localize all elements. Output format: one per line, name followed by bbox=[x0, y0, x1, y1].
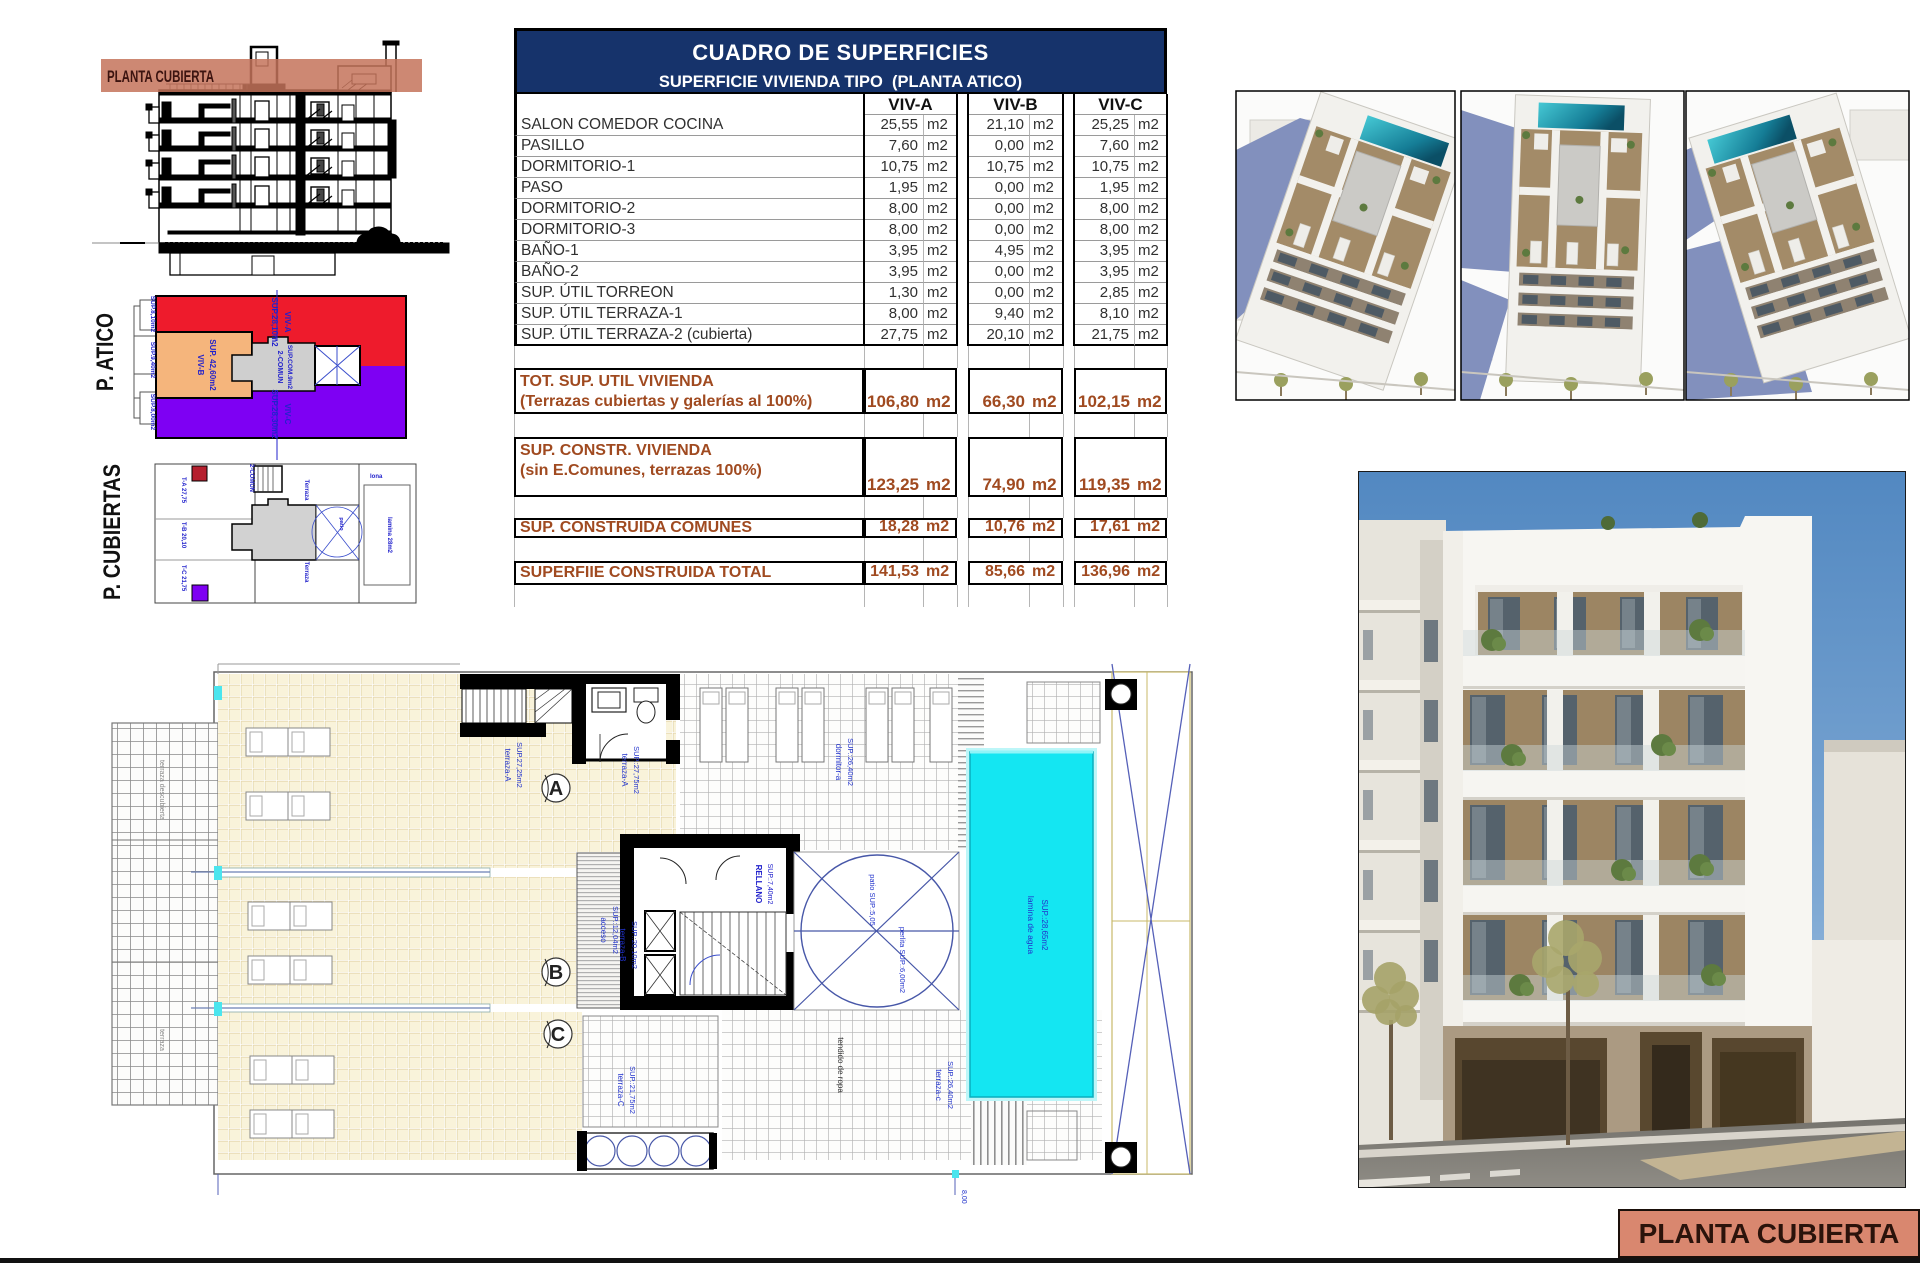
svg-text:terraza-A: terraza-A bbox=[620, 754, 629, 788]
svg-text:B: B bbox=[549, 962, 563, 984]
svg-text:lona: lona bbox=[370, 474, 383, 480]
svg-text:RELLANO: RELLANO bbox=[754, 865, 763, 904]
svg-text:Terraza: Terraza bbox=[303, 480, 309, 502]
svg-text:terraza: terraza bbox=[158, 1029, 165, 1051]
svg-text:Terraza: Terraza bbox=[303, 562, 309, 584]
svg-text:SUP.:27,75m2: SUP.:27,75m2 bbox=[632, 746, 641, 794]
svg-text:perlita SUP.:6,00m2: perlita SUP.:6,00m2 bbox=[898, 927, 907, 993]
svg-text:PLANTA CUBIERTA: PLANTA CUBIERTA bbox=[107, 68, 214, 86]
svg-text:SUP.:7,40m2: SUP.:7,40m2 bbox=[766, 864, 773, 905]
svg-text:terraza-c: terraza-c bbox=[934, 1069, 943, 1101]
svg-text:T-C 21,75: T-C 21,75 bbox=[180, 565, 186, 592]
svg-text:SUP.:26,40m2: SUP.:26,40m2 bbox=[946, 1061, 955, 1109]
svg-text:P. ATICO: P. ATICO bbox=[95, 313, 119, 391]
svg-text:SUP.:20,10m2: SUP.:20,10m2 bbox=[630, 921, 639, 969]
svg-text:SUP.:21,75m2: SUP.:21,75m2 bbox=[628, 1066, 637, 1114]
svg-text:2-COMUN: 2-COMUN bbox=[248, 464, 254, 492]
svg-text:SUP.8,00m2: SUP.8,00m2 bbox=[149, 394, 156, 431]
svg-text:SUP.:28,65m2: SUP.:28,65m2 bbox=[1040, 900, 1049, 952]
svg-text:SUP.:26,40m2: SUP.:26,40m2 bbox=[846, 738, 855, 786]
svg-text:SUP.27,25m2: SUP.27,25m2 bbox=[515, 742, 524, 788]
svg-text:C: C bbox=[551, 1024, 565, 1046]
svg-text:SUP. 42,60m2: SUP. 42,60m2 bbox=[208, 339, 217, 391]
svg-text:SUP.9,40m2: SUP.9,40m2 bbox=[149, 342, 156, 379]
svg-text:tendido de ropa: tendido de ropa bbox=[836, 1037, 845, 1093]
svg-text:VIV-C: VIV-C bbox=[283, 404, 292, 425]
svg-text:2-COMUN: 2-COMUN bbox=[276, 351, 283, 384]
svg-text:patio: patio bbox=[338, 517, 344, 531]
svg-text:T-B 20,10: T-B 20,10 bbox=[180, 522, 186, 549]
svg-text:A: A bbox=[549, 778, 563, 800]
svg-text:patio SUP.:5,05: patio SUP.:5,05 bbox=[868, 874, 877, 926]
svg-text:terraza-C: terraza-C bbox=[616, 1073, 625, 1107]
svg-text:VIV-A: VIV-A bbox=[283, 312, 292, 333]
svg-text:SUP.:12,04m2: SUP.:12,04m2 bbox=[611, 906, 620, 954]
svg-text:acceso: acceso bbox=[599, 917, 608, 943]
svg-text:SUP.8,10m2: SUP.8,10m2 bbox=[149, 296, 156, 333]
svg-text:VIV-B: VIV-B bbox=[196, 355, 205, 376]
svg-text:dormitor-a: dormitor-a bbox=[834, 744, 843, 781]
svg-text:terraza-A: terraza-A bbox=[503, 749, 512, 783]
svg-text:T-A 27,75: T-A 27,75 bbox=[180, 477, 186, 504]
svg-text:terraza descubierta: terraza descubierta bbox=[158, 760, 165, 820]
svg-text:SUP.28,10m2: SUP.28,10m2 bbox=[270, 297, 279, 347]
svg-text:SUP.COM.9m2: SUP.COM.9m2 bbox=[286, 345, 293, 390]
svg-text:SUP.28,30m2: SUP.28,30m2 bbox=[270, 389, 279, 439]
svg-text:lamina 28m2: lamina 28m2 bbox=[386, 517, 392, 554]
svg-text:P. CUBIERTAS: P. CUBIERTAS bbox=[99, 464, 126, 600]
svg-text:lamina de agua: lamina de agua bbox=[1026, 896, 1036, 954]
svg-text:8,00: 8,00 bbox=[960, 1190, 967, 1204]
